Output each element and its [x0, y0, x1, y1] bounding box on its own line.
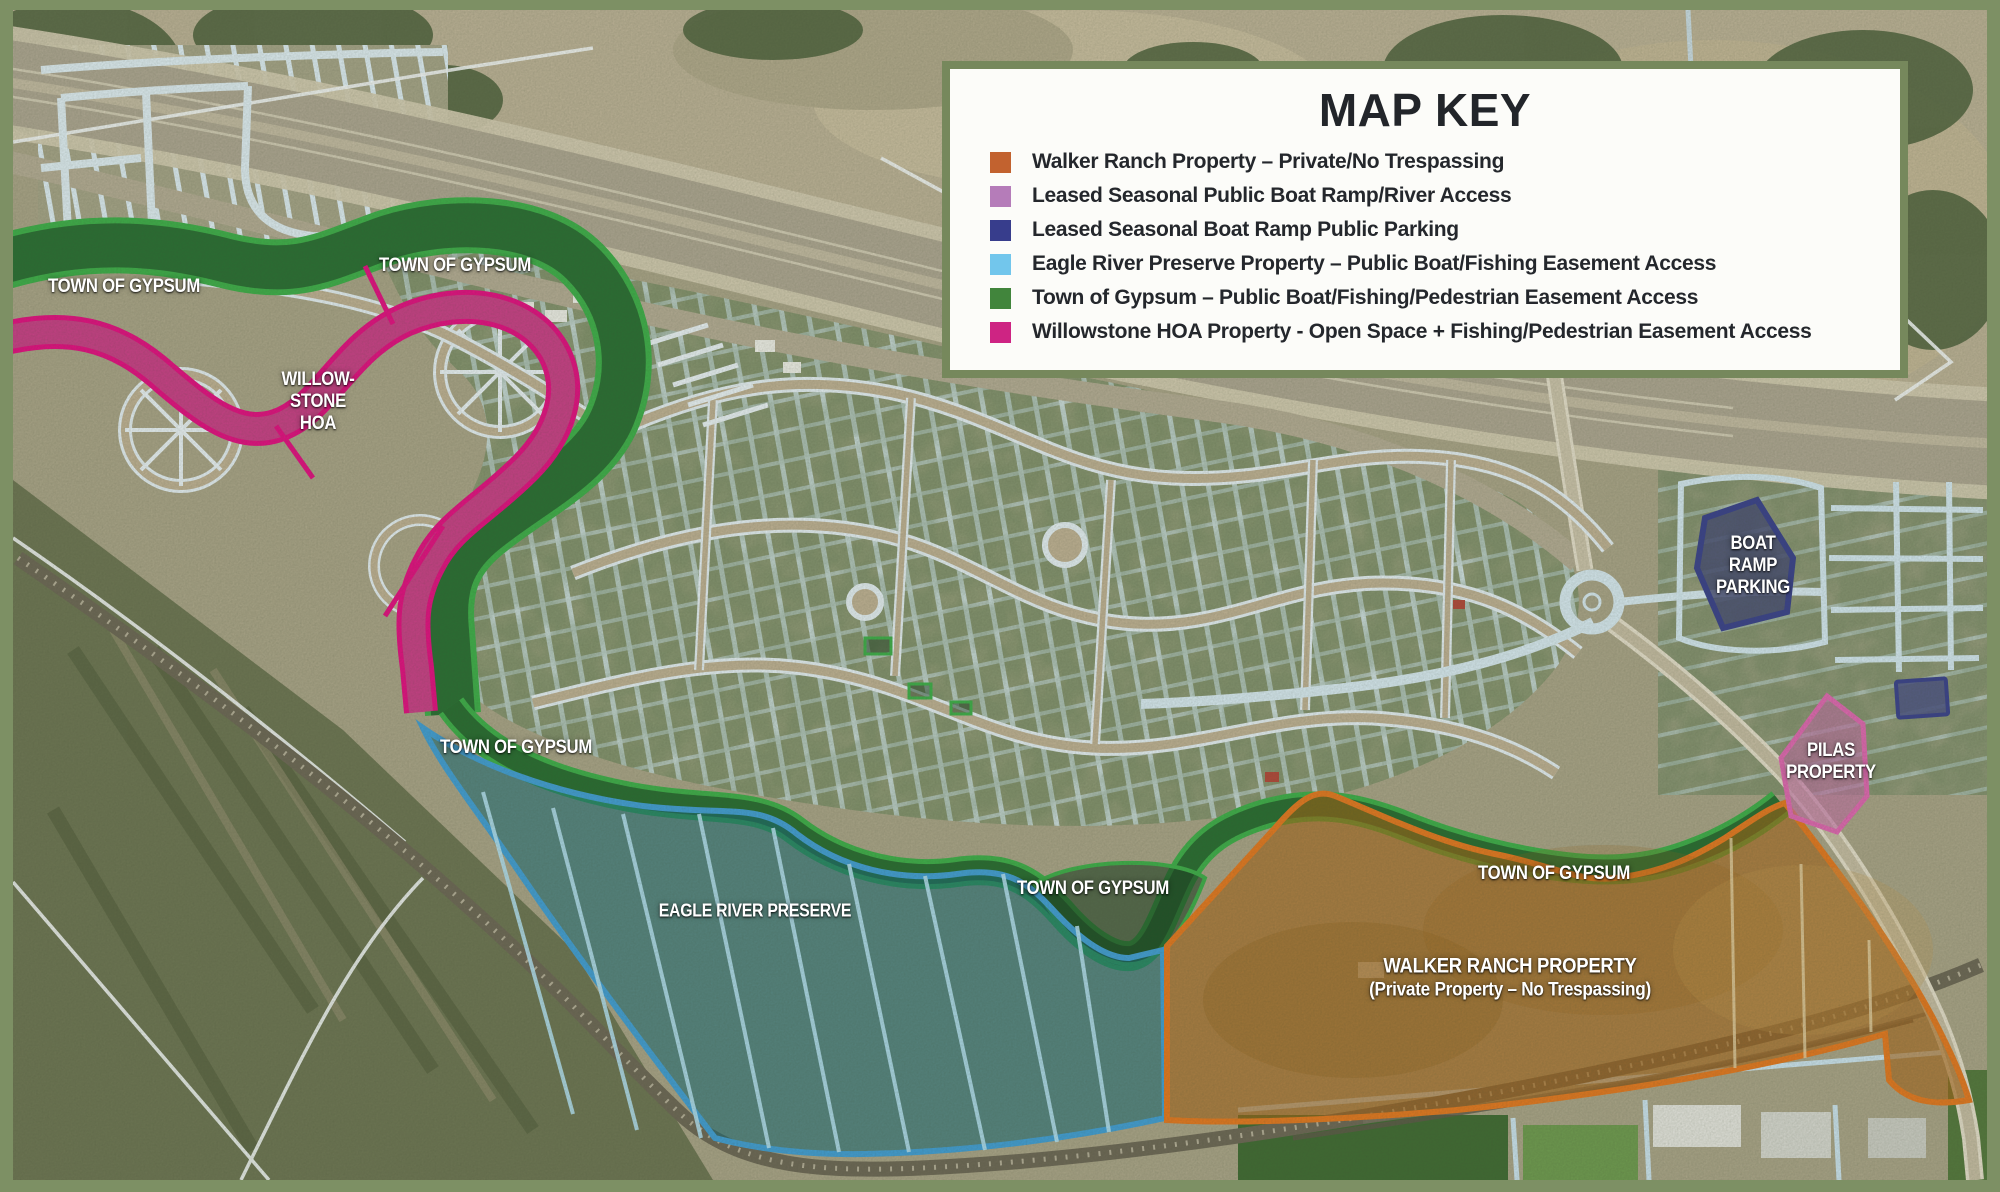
label-boat-ramp-parking: BOAT RAMP PARKING [1716, 533, 1790, 599]
legend-swatch-leased-parking [990, 220, 1011, 241]
legend-label: Leased Seasonal Boat Ramp Public Parking [1032, 218, 1459, 242]
label-eagle-river-preserve: EAGLE RIVER PRESERVE [659, 901, 851, 922]
legend-row-walker-ranch: Walker Ranch Property – Private/No Tresp… [990, 151, 1900, 173]
legend-row-leased-parking: Leased Seasonal Boat Ramp Public Parking [990, 219, 1900, 241]
legend-label: Town of Gypsum – Public Boat/Fishing/Ped… [1032, 286, 1698, 310]
map-page: TOWN OF GYPSUM TOWN OF GYPSUM TOWN OF GY… [0, 0, 2000, 1192]
legend-label: Leased Seasonal Public Boat Ramp/River A… [1032, 184, 1511, 208]
legend-swatch-town-of-gypsum [990, 288, 1011, 309]
label-pilas-property: PILAS PROPERTY [1786, 740, 1876, 784]
label-town-of-gypsum-north: TOWN OF GYPSUM [379, 255, 531, 277]
legend-label: Eagle River Preserve Property – Public B… [1032, 252, 1716, 276]
legend-swatch-eagle-river-preserve [990, 254, 1011, 275]
label-town-of-gypsum-south: TOWN OF GYPSUM [1017, 878, 1169, 900]
label-walker-ranch: WALKER RANCH PROPERTY (Private Property … [1369, 954, 1651, 1001]
legend-swatch-leased-boat-ramp [990, 186, 1011, 207]
label-town-of-gypsum-east: TOWN OF GYPSUM [1478, 863, 1630, 885]
legend-swatch-willowstone-hoa [990, 322, 1011, 343]
legend-row-town-of-gypsum: Town of Gypsum – Public Boat/Fishing/Ped… [990, 287, 1900, 309]
legend-label: Willowstone HOA Property - Open Space + … [1032, 320, 1812, 344]
label-town-of-gypsum-west: TOWN OF GYPSUM [440, 737, 592, 759]
label-town-of-gypsum-nw: TOWN OF GYPSUM [48, 276, 200, 298]
legend-swatch-walker-ranch [990, 152, 1011, 173]
legend-row-willowstone-hoa: Willowstone HOA Property - Open Space + … [990, 321, 1900, 343]
legend-row-eagle-river-preserve: Eagle River Preserve Property – Public B… [990, 253, 1900, 275]
aerial-map: TOWN OF GYPSUM TOWN OF GYPSUM TOWN OF GY… [13, 10, 1987, 1180]
legend-label: Walker Ranch Property – Private/No Tresp… [1032, 150, 1504, 174]
map-key-panel: MAP KEY Walker Ranch Property – Private/… [942, 61, 1908, 378]
legend-row-leased-boat-ramp: Leased Seasonal Public Boat Ramp/River A… [990, 185, 1900, 207]
legend-title: MAP KEY [990, 83, 1860, 137]
label-willowstone-hoa: WILLOW- STONE HOA [281, 369, 354, 435]
